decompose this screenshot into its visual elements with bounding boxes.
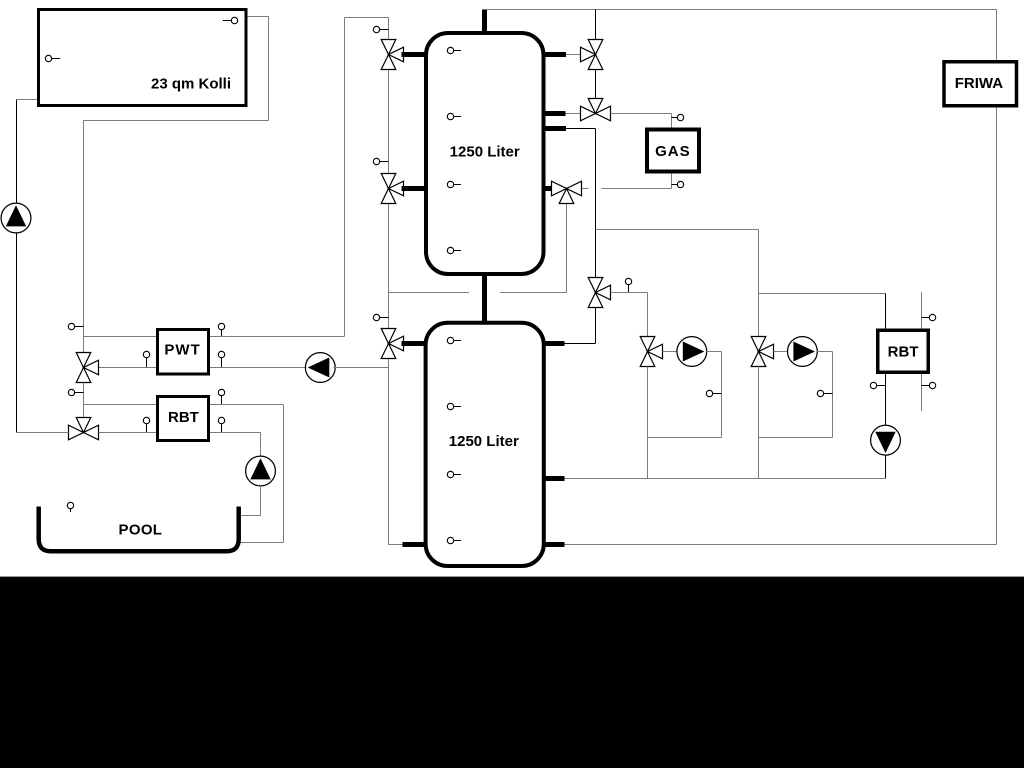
svg-text:RBT: RBT (888, 344, 919, 361)
svg-text:RBT: RBT (168, 409, 199, 426)
svg-text:POOL: POOL (119, 521, 163, 538)
svg-text:23 qm Kolli: 23 qm Kolli (151, 75, 231, 92)
svg-text:PWT: PWT (164, 342, 200, 359)
svg-text:1250 Liter: 1250 Liter (449, 433, 519, 450)
svg-text:FRIWA: FRIWA (955, 75, 1003, 92)
svg-text:GAS: GAS (655, 143, 691, 160)
svg-text:1250 Liter: 1250 Liter (450, 144, 520, 161)
